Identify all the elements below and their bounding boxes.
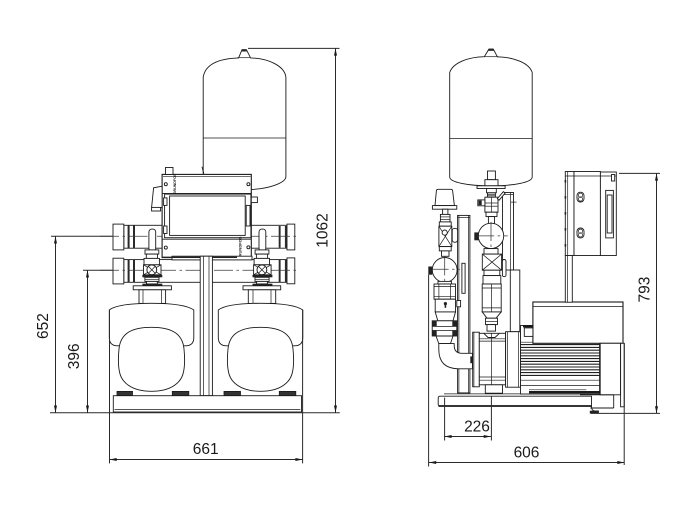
svg-text:793: 793	[637, 277, 654, 303]
svg-text:661: 661	[193, 441, 219, 458]
svg-text:226: 226	[464, 418, 490, 435]
svg-text:1062: 1062	[315, 213, 332, 247]
svg-text:652: 652	[35, 313, 52, 339]
svg-text:GRUNDFOS: GRUNDFOS	[173, 173, 177, 194]
svg-text:396: 396	[66, 343, 83, 369]
svg-text:606: 606	[514, 445, 540, 462]
